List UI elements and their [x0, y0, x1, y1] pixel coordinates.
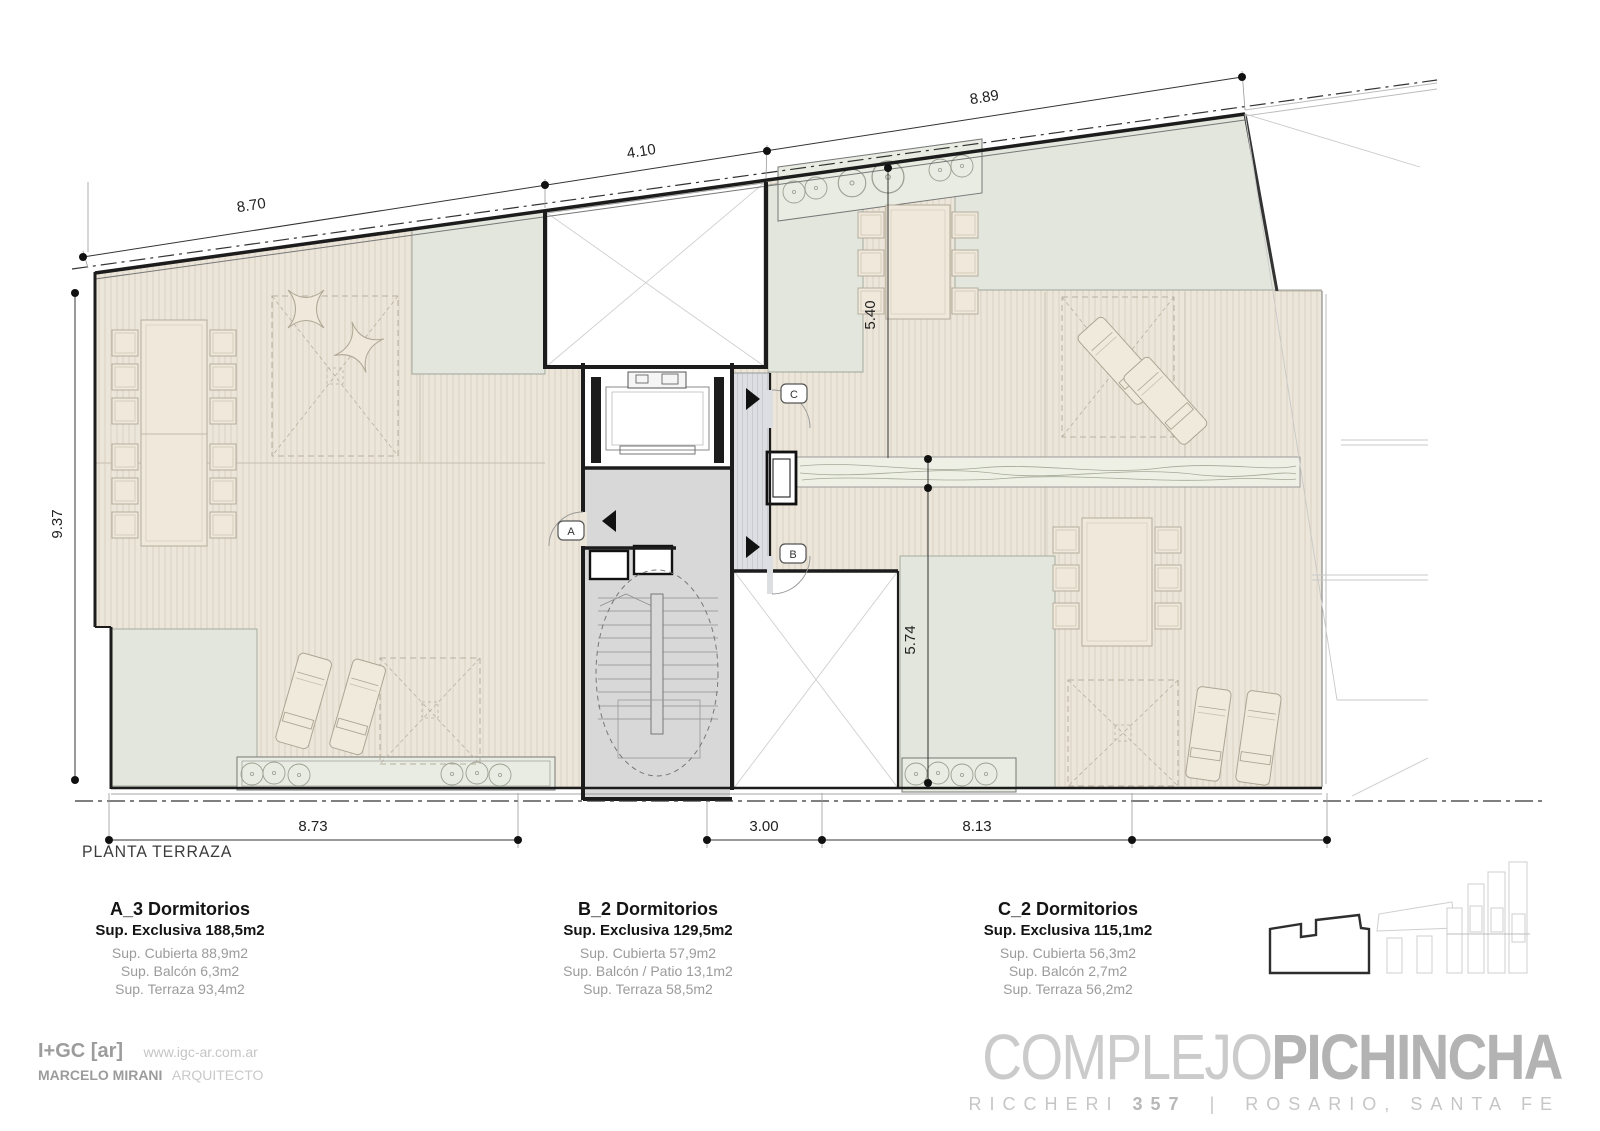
unit-a-exclusiva: Sup. Exclusiva 188,5m2	[95, 921, 264, 941]
unit-b-name: B_2 Dormitorios	[563, 898, 733, 921]
address-separator: |	[1210, 1094, 1223, 1114]
project-logo: COMPLEJOPICHINCHA	[983, 1020, 1562, 1094]
unit-b-balcon: Sup. Balcón / Patio 13,1m2	[563, 962, 733, 980]
architect-role: ARQUITECTO	[172, 1067, 264, 1083]
unit-b-exclusiva: Sup. Exclusiva 129,5m2	[563, 921, 733, 941]
studio-name: I+GC [ar]	[38, 1040, 123, 1062]
unit-c-terraza: Sup. Terraza 56,2m2	[984, 980, 1152, 998]
unit-c-name: C_2 Dormitorios	[984, 898, 1152, 921]
dim-top-2: 4.10	[626, 141, 657, 162]
dim-mid-lower: 5.74	[902, 625, 919, 654]
door-label-a: A	[567, 526, 575, 538]
unit-summary-b: B_2 Dormitorios Sup. Exclusiva 129,5m2 S…	[563, 898, 733, 998]
dim-top-1: 8.70	[236, 195, 267, 216]
address-number: 357	[1133, 1094, 1187, 1114]
unit-c-balcon: Sup. Balcón 2,7m2	[984, 962, 1152, 980]
dim-bottom-1: 8.73	[298, 818, 327, 835]
door-label-c: C	[790, 389, 798, 401]
dim-bottom-3: 8.13	[962, 818, 991, 835]
unit-b-terraza: Sup. Terraza 58,5m2	[563, 980, 733, 998]
unit-a-terraza: Sup. Terraza 93,4m2	[95, 980, 264, 998]
dim-top-3: 8.89	[969, 87, 1000, 108]
patio-void-b	[734, 571, 898, 788]
dim-bottom-2: 3.00	[749, 818, 778, 835]
address-city: ROSARIO,	[1245, 1094, 1397, 1114]
project-name-light: COMPLEJO	[983, 1021, 1272, 1093]
address-street: RICCHERI	[968, 1094, 1119, 1114]
unit-summary-a: A_3 Dormitorios Sup. Exclusiva 188,5m2 S…	[95, 898, 264, 998]
architectural-sheet: A C B	[0, 0, 1600, 1131]
project-address: RICCHERI 357 | ROSARIO, SANTA FE	[968, 1094, 1560, 1115]
unit-a-name: A_3 Dormitorios	[95, 898, 264, 921]
pillar	[767, 452, 796, 504]
dim-mid-upper: 5.40	[862, 300, 879, 329]
unit-b-cubierta: Sup. Cubierta 57,9m2	[563, 944, 733, 962]
lobby	[585, 468, 730, 548]
unit-a-balcon: Sup. Balcón 6,3m2	[95, 962, 264, 980]
unit-a-cubierta: Sup. Cubierta 88,9m2	[95, 944, 264, 962]
unit-c-cubierta: Sup. Cubierta 56,3m2	[984, 944, 1152, 962]
project-name-bold: PICHINCHA	[1272, 1021, 1562, 1093]
building-section-inset	[1270, 862, 1530, 973]
void-skylight-top	[547, 183, 764, 366]
dim-left: 9.37	[49, 509, 66, 538]
door-label-b: B	[789, 549, 796, 561]
unit-c-exclusiva: Sup. Exclusiva 115,1m2	[984, 921, 1152, 941]
circulation-core	[585, 365, 730, 799]
unit-summary-c: C_2 Dormitorios Sup. Exclusiva 115,1m2 S…	[984, 898, 1152, 998]
studio-signature: I+GC [ar] www.igc-ar.com.ar MARCELO MIRA…	[38, 1040, 263, 1085]
address-province: SANTA FE	[1410, 1094, 1560, 1114]
architect-name: MARCELO MIRANI	[38, 1067, 162, 1083]
plan-title: PLANTA TERRAZA	[82, 842, 232, 862]
planter-a	[237, 757, 555, 790]
highlighted-terrace-unit	[1270, 915, 1369, 973]
hedge-planter-strip	[796, 457, 1300, 487]
studio-website: www.igc-ar.com.ar	[143, 1044, 257, 1060]
